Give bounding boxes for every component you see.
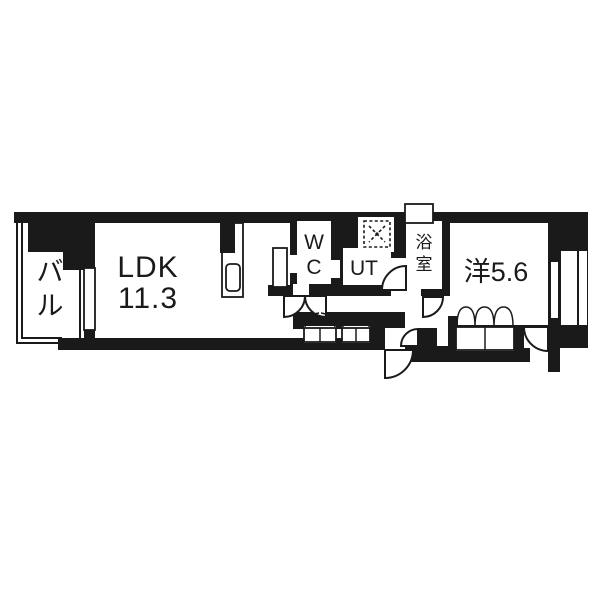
door-arc-entrance bbox=[385, 350, 413, 378]
label-balcony-char1: バ bbox=[37, 257, 64, 287]
wall-balcony-block-left bbox=[28, 223, 63, 252]
wc-door-gap bbox=[293, 284, 309, 296]
ldk-door-leaf bbox=[273, 248, 287, 287]
floorplan-svg: バ ル LDK 11.3 W C UT 浴 室 洋5.6 bbox=[0, 0, 600, 600]
window-balcony-icon bbox=[84, 268, 95, 330]
label-wc-char1: W bbox=[304, 231, 324, 254]
kitchen-sink-icon bbox=[220, 212, 243, 297]
label-wc-char2: C bbox=[306, 256, 321, 279]
wc-niche-left bbox=[288, 255, 298, 273]
western-closet-arcs bbox=[457, 307, 513, 326]
label-western: 洋5.6 bbox=[464, 257, 529, 287]
label-ut: UT bbox=[350, 257, 378, 280]
label-ldk-line2: 11.3 bbox=[118, 282, 178, 315]
label-bath-char2: 室 bbox=[416, 255, 433, 274]
wall-entry-block bbox=[418, 328, 440, 346]
label-ldk-line1: LDK bbox=[117, 251, 178, 284]
label-bath-char1: 浴 bbox=[416, 233, 433, 252]
label-balcony-char2: ル bbox=[37, 291, 64, 321]
floorplan-image: バ ル LDK 11.3 W C UT 浴 室 洋5.6 bbox=[0, 0, 600, 600]
right-slot-2 bbox=[561, 251, 577, 325]
right-slot-1 bbox=[551, 262, 558, 318]
right-slot-3 bbox=[579, 251, 587, 325]
washer-dot bbox=[375, 232, 378, 235]
wall-right-column-stub bbox=[548, 348, 560, 372]
bath-top-notch bbox=[405, 204, 433, 223]
kitchen-sink-basin bbox=[226, 264, 240, 291]
wc-niche-right bbox=[330, 260, 340, 278]
kitchen-wall-overlap bbox=[220, 212, 235, 253]
wall-entry-stub bbox=[370, 316, 385, 350]
